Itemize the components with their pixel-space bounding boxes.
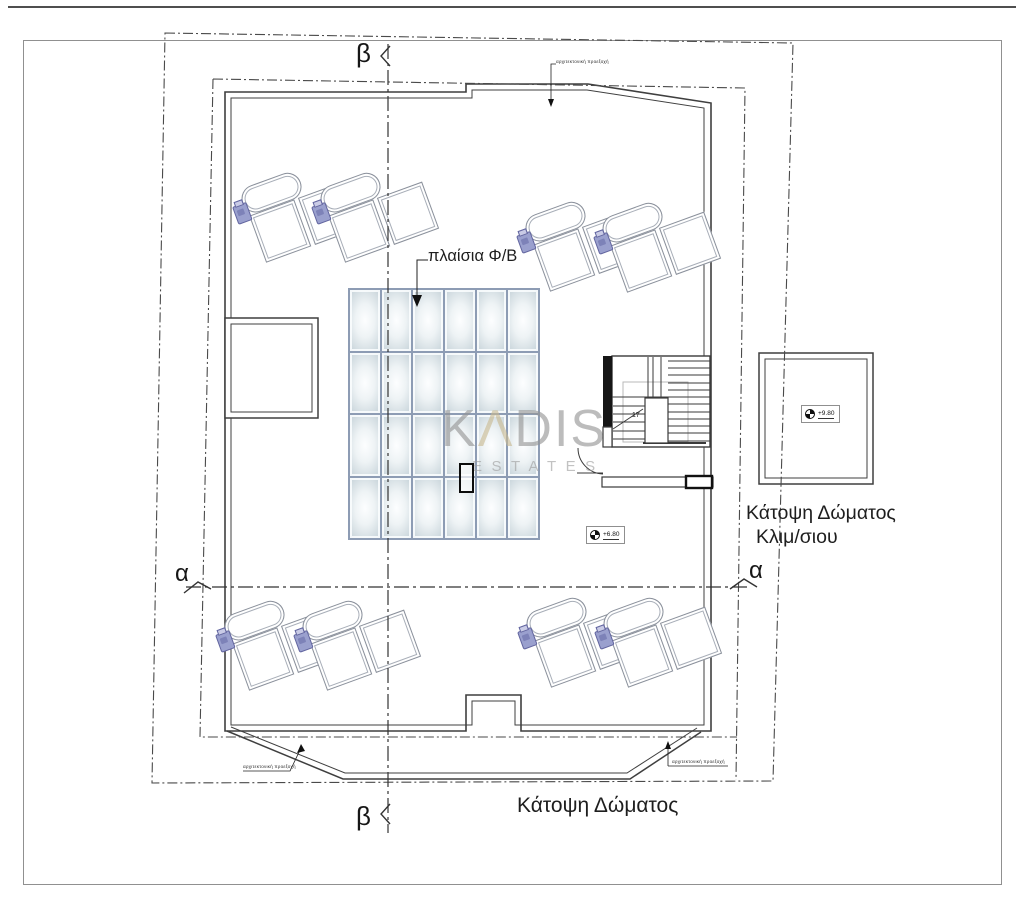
- projection-note-bottom-right: αρχιτεκτονική προεξοχή: [672, 759, 725, 764]
- pv-label-leader: [417, 260, 428, 296]
- section-marker-alpha-right: α: [749, 557, 763, 585]
- projection-note-bottom-left: αρχιτεκτονική προεξοχή: [243, 764, 296, 769]
- elevation-marker-roof: +6.80: [586, 526, 625, 544]
- roof-plan-drawing: KΛDIS ESTATES πλαίσια Φ/Β Κ: [0, 0, 1024, 897]
- elevation-value: +6.80: [603, 531, 619, 540]
- inner-boundary: [200, 79, 745, 780]
- pv-label-arrowhead: [412, 295, 422, 307]
- leader-lines: [243, 64, 728, 771]
- elevation-marker-stair-roof: +9.80: [801, 405, 840, 423]
- projection-note-top: αρχιτεκτονική προεξοχή: [556, 59, 609, 64]
- outer-boundary: [152, 33, 793, 783]
- level-marker-icon: [805, 409, 815, 419]
- top-note-arrowhead: [548, 99, 554, 107]
- section-marker-beta-top: β: [356, 38, 371, 69]
- stair-roof-plan-title-line2: Κλιμ/σιου: [756, 526, 838, 549]
- top-note-leader: [551, 64, 556, 100]
- plot-boundary-lines: [152, 33, 793, 783]
- stair-step-count: 17: [632, 412, 640, 419]
- level-marker-icon: [590, 530, 600, 540]
- section-marker-beta-bottom: β: [356, 801, 371, 832]
- plan-title: Κάτοψη Δώματος: [517, 794, 678, 818]
- section-marker-alpha-left: α: [175, 560, 189, 588]
- plan-linework-foreground: [0, 0, 1024, 897]
- stair-roof-plan-title-line1: Κάτοψη Δώματος: [746, 502, 896, 525]
- pv-panels-label: πλαίσια Φ/Β: [428, 247, 517, 266]
- section-lines: [184, 44, 757, 833]
- br-note-arrowhead: [665, 741, 671, 749]
- bl-note-arrowhead: [297, 744, 305, 753]
- elevation-value: +9.80: [818, 410, 834, 419]
- beta-chevron-top: [381, 46, 390, 66]
- beta-chevron-bottom: [381, 804, 390, 824]
